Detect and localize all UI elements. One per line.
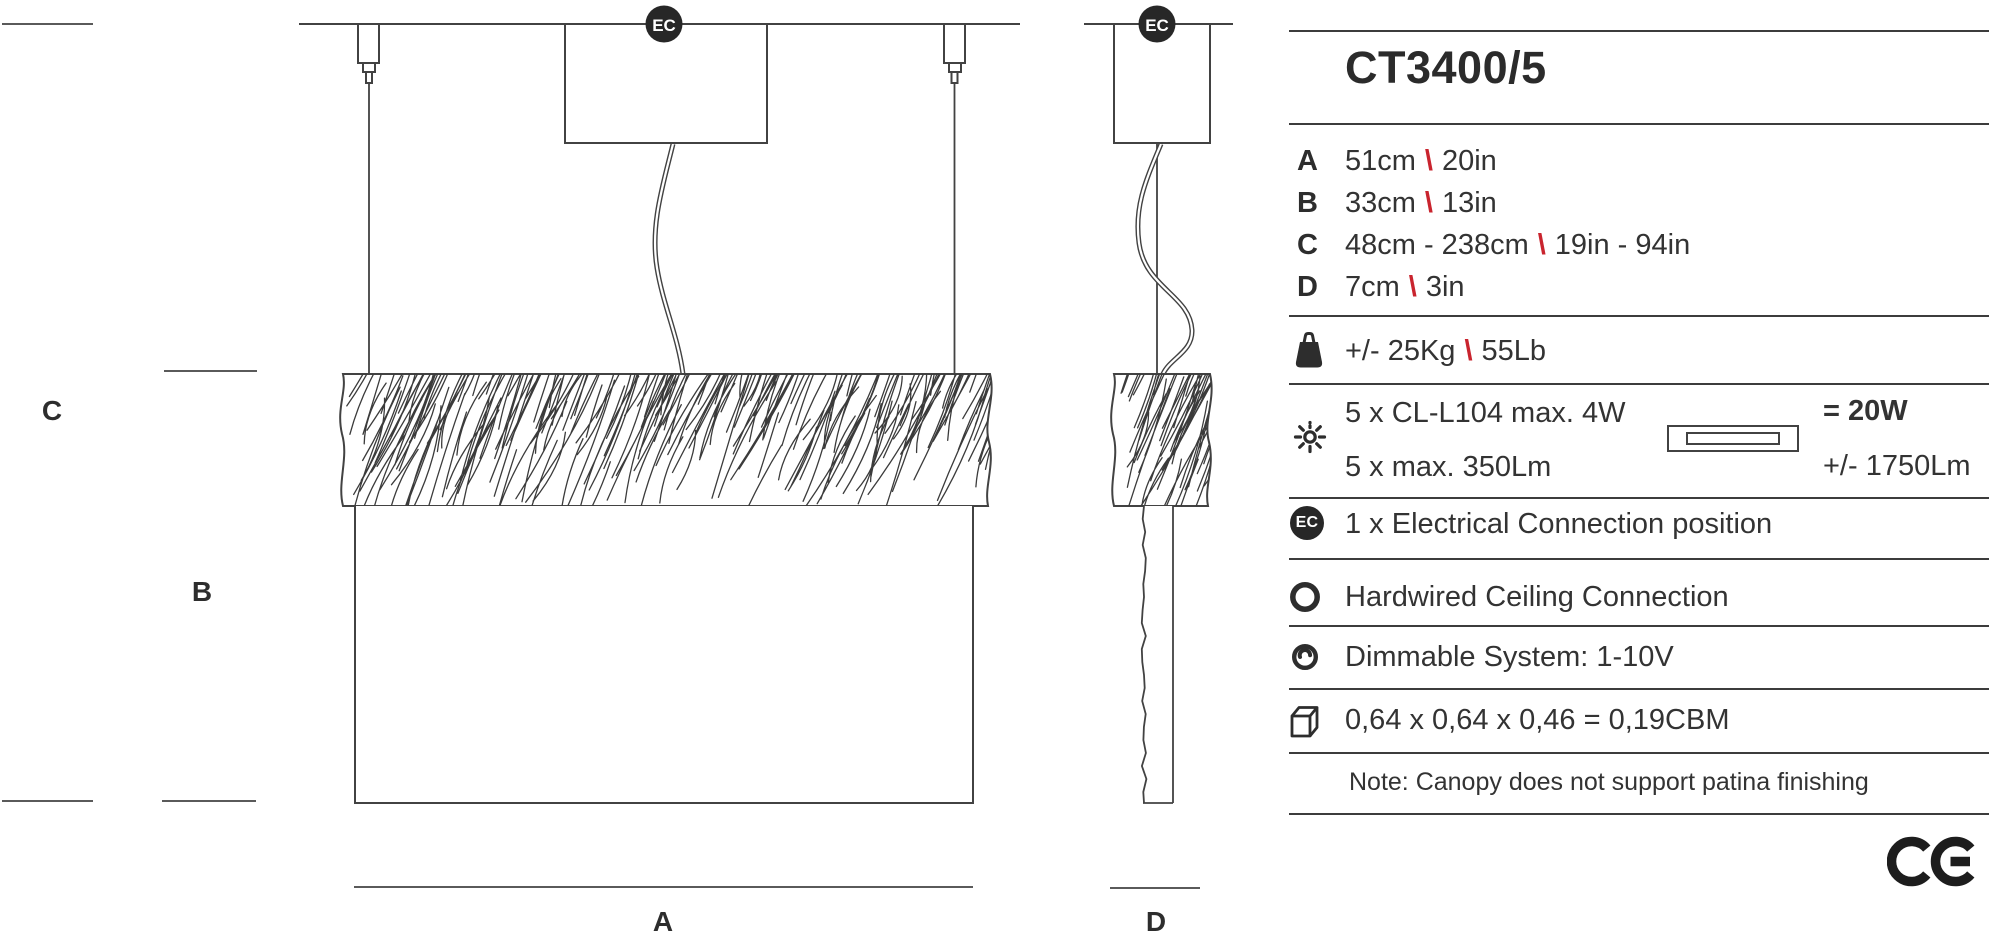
drum-shade-front	[355, 506, 973, 803]
ce-mark-icon	[1887, 834, 1975, 889]
cable-gripper-right	[944, 24, 965, 83]
led-module-figure	[1667, 425, 1799, 452]
ec-badge-side: EC	[1139, 6, 1176, 43]
box-icon	[1289, 704, 1321, 738]
separator	[1289, 688, 1989, 690]
dim-row-value: 48cm - 238cm\19in - 94in	[1345, 225, 1690, 265]
separator	[1289, 625, 1989, 627]
weight-imperial: 55Lb	[1482, 335, 1547, 367]
dim-imperial: 19in - 94in	[1555, 229, 1690, 261]
dim-imperial: 3in	[1426, 271, 1465, 303]
technical-drawing: EC EC A B C D	[0, 0, 1260, 941]
product-title: CT3400/5	[1345, 42, 1547, 94]
canopy-side	[1114, 24, 1210, 143]
dim-metric: 51cm	[1345, 145, 1416, 177]
dim-label-b: B	[192, 576, 212, 607]
red-backslash: \	[1416, 145, 1442, 177]
ec-icon-label: EC	[1296, 514, 1319, 532]
separator	[1289, 752, 1989, 754]
dim-row-key: A	[1297, 141, 1339, 181]
separator	[1289, 558, 1989, 560]
separator	[1289, 497, 1989, 499]
separator	[1289, 123, 1989, 125]
dimmer-icon	[1290, 642, 1320, 672]
feature-packing-volume: 0,64 x 0,64 x 0,46 = 0,19CBM	[1345, 700, 1730, 740]
dim-row-value: 51cm\20in	[1345, 141, 1497, 181]
lamp-spec-line1: 5 x CL-L104 max. 4W	[1345, 393, 1625, 433]
dim-row-key: B	[1297, 183, 1339, 223]
power-cord-side	[1138, 144, 1192, 374]
weight-metric: +/- 25Kg	[1345, 335, 1455, 367]
dim-label-d: D	[1146, 906, 1166, 937]
separator	[1289, 813, 1989, 815]
drum-shade-side	[1142, 506, 1173, 803]
dim-row-value: 7cm\3in	[1345, 267, 1465, 307]
total-lumen: +/- 1750Lm	[1823, 446, 1971, 486]
red-backslash: \	[1400, 271, 1426, 303]
ec-badge-front: EC	[646, 6, 683, 43]
spec-sheet: EC EC A B C D CT3400/5 A 51cm\20in B 33c…	[0, 0, 2000, 941]
note-text: Note: Canopy does not support patina fin…	[1349, 762, 1869, 802]
power-cord-front	[655, 144, 683, 374]
dim-metric: 48cm - 238cm	[1345, 229, 1529, 261]
dim-row-key: D	[1297, 267, 1339, 307]
feature-hardwired: Hardwired Ceiling Connection	[1345, 577, 1729, 617]
red-backslash: \	[1416, 187, 1442, 219]
dim-imperial: 20in	[1442, 145, 1497, 177]
separator	[1289, 30, 1989, 32]
dim-label-a: A	[653, 906, 673, 937]
dim-imperial: 13in	[1442, 187, 1497, 219]
weight-icon	[1293, 332, 1325, 370]
dim-row-key: C	[1297, 225, 1339, 265]
separator	[1289, 315, 1989, 317]
weight-value: +/- 25Kg\55Lb	[1345, 331, 1546, 371]
ec-badge-front-label: EC	[652, 16, 676, 35]
led-module-figure-inner	[1686, 432, 1780, 445]
dim-row-value: 33cm\13in	[1345, 183, 1497, 223]
feature-dimmable: Dimmable System: 1-10V	[1345, 637, 1674, 677]
total-wattage: = 20W	[1823, 391, 1908, 431]
cable-gripper-left	[358, 24, 379, 83]
feature-electrical-connection: 1 x Electrical Connection position	[1345, 504, 1772, 544]
ring-icon	[1289, 581, 1321, 613]
spec-panel: CT3400/5 A 51cm\20in B 33cm\13in C 48cm …	[1289, 0, 1989, 941]
ec-icon: EC	[1290, 506, 1324, 540]
dim-label-c: C	[42, 395, 62, 426]
dim-metric: 33cm	[1345, 187, 1416, 219]
separator	[1289, 383, 1989, 385]
lamp-spec-line2: 5 x max. 350Lm	[1345, 447, 1551, 487]
bulb-icon	[1292, 419, 1328, 455]
ec-badge-side-label: EC	[1145, 16, 1169, 35]
dim-metric: 7cm	[1345, 271, 1400, 303]
red-backslash: \	[1455, 335, 1481, 367]
red-backslash: \	[1529, 229, 1555, 261]
